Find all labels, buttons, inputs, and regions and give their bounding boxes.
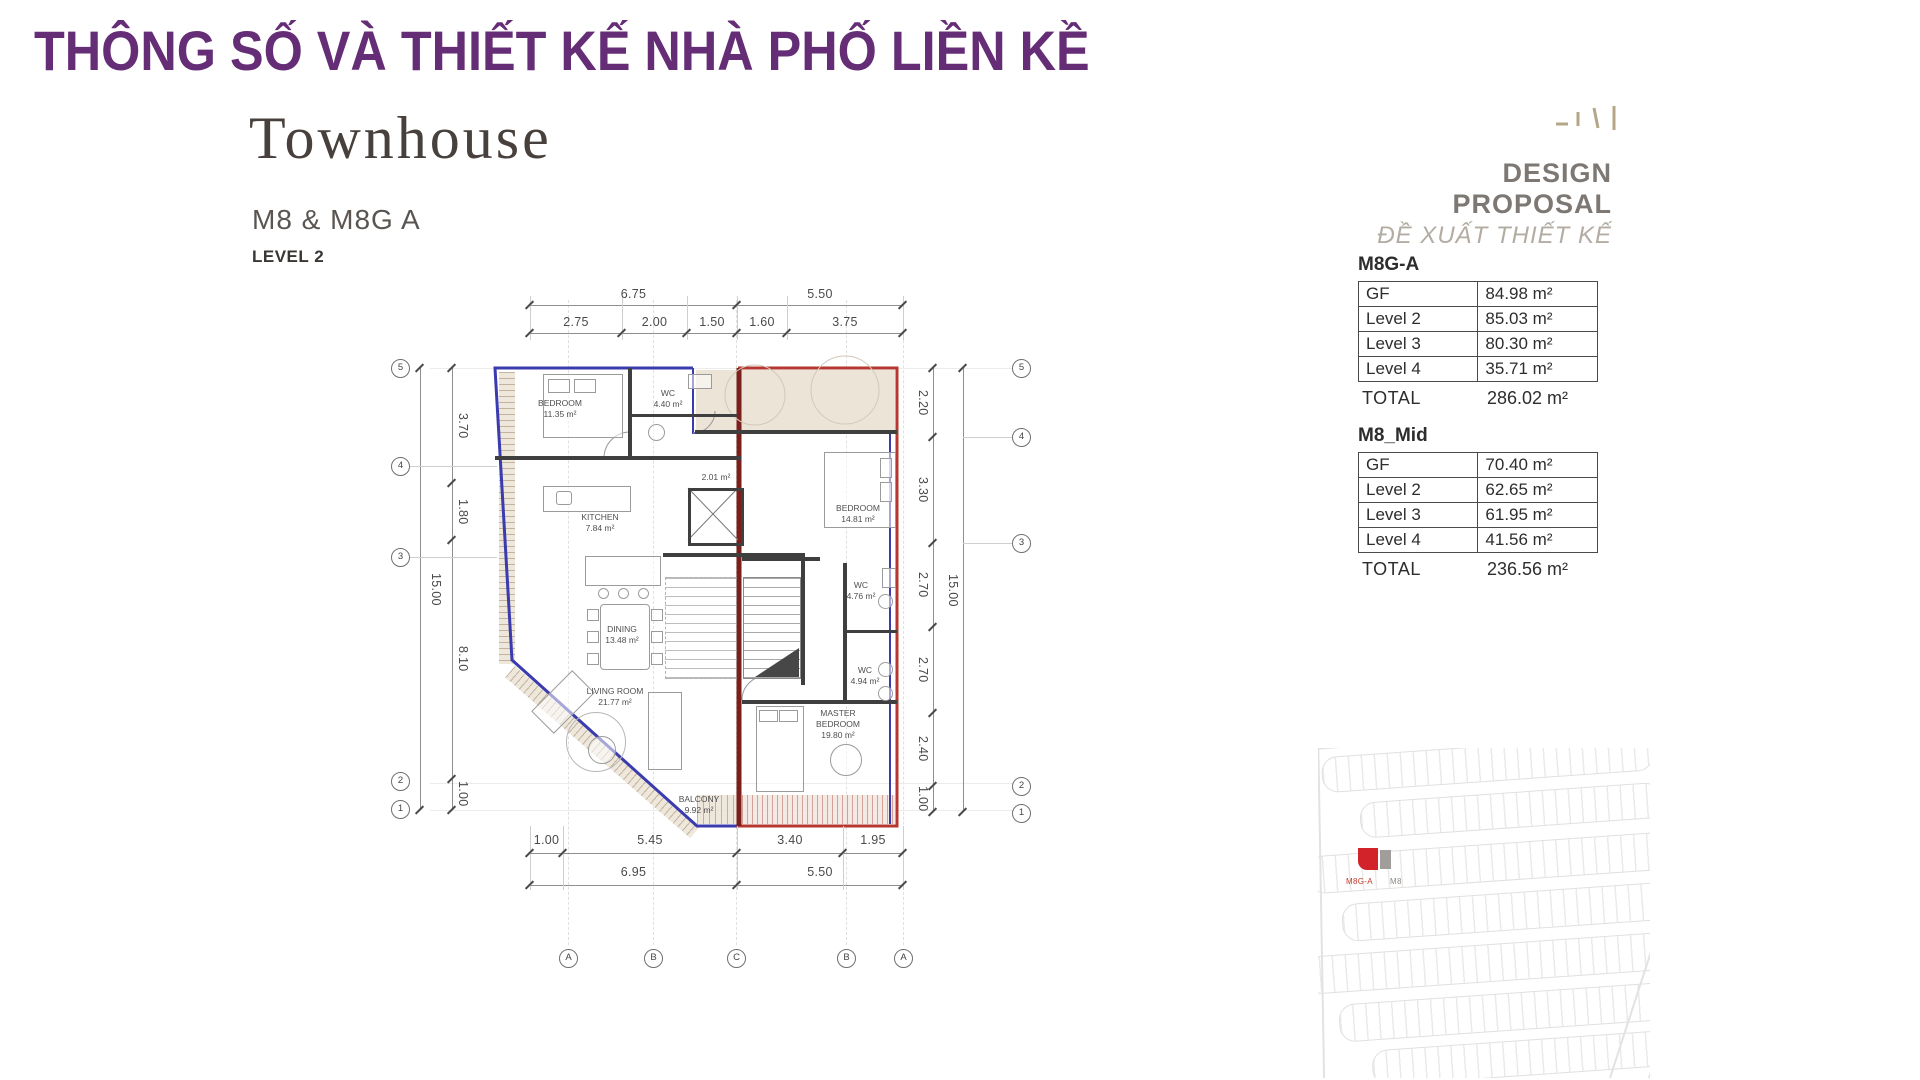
site-location-map [1318, 748, 1650, 1078]
site-map-highlight-m8ga [1358, 848, 1378, 870]
area-tables: M8G-A GF84.98 m² Level 285.03 m² Level 3… [1358, 254, 1598, 596]
row-label: Level 3 [1359, 503, 1478, 528]
grid-col-bubble: C [727, 949, 746, 968]
grid-col-bubble: A [894, 949, 913, 968]
row-value: 84.98 m² [1478, 282, 1598, 307]
design-proposal-subtitle: ĐỀ XUẤT THIẾT KẾ [1356, 222, 1612, 250]
grid-row-bubble: 3 [391, 548, 410, 567]
row-label: GF [1359, 282, 1478, 307]
room-wc-2: WC4.76 m² [830, 580, 892, 602]
table-title-m8mid: M8_Mid [1358, 425, 1598, 447]
table-total-m8ga: TOTAL 286.02 m² [1358, 388, 1598, 409]
grid-col-bubble: B [644, 949, 663, 968]
row-value: 35.71 m² [1478, 357, 1598, 382]
room-wc-3: WC4.94 m² [834, 665, 896, 687]
row-value: 41.56 m² [1478, 528, 1598, 553]
grid-row-bubble: 2 [1012, 777, 1031, 796]
row-value: 85.03 m² [1478, 307, 1598, 332]
row-value: 61.95 m² [1478, 503, 1598, 528]
room-wc-1: WC4.40 m² [640, 388, 696, 410]
grid-col-bubble: A [559, 949, 578, 968]
area-table-m8mid: GF70.40 m² Level 262.65 m² Level 361.95 … [1358, 452, 1598, 553]
row-label: Level 3 [1359, 332, 1478, 357]
grid-row-bubble: 5 [1012, 359, 1031, 378]
room-hall: 2.01 m² [690, 472, 742, 483]
grid-col-bubble: B [837, 949, 856, 968]
row-value: 62.65 m² [1478, 478, 1598, 503]
design-proposal-header: DESIGN PROPOSAL ĐỀ XUẤT THIẾT KẾ [1356, 158, 1612, 250]
row-label: Level 2 [1359, 307, 1478, 332]
grid-row-bubble: 5 [391, 359, 410, 378]
table-title-m8ga: M8G-A [1358, 254, 1598, 276]
room-bedroom-1: BEDROOM11.35 m² [519, 398, 601, 420]
row-value: 80.30 m² [1478, 332, 1598, 357]
design-proposal-title: DESIGN PROPOSAL [1356, 158, 1612, 220]
slide: THÔNG SỐ VÀ THIẾT KẾ NHÀ PHỐ LIỀN KỀ Tow… [0, 0, 1920, 1080]
row-value: 70.40 m² [1478, 453, 1598, 478]
row-label: Level 2 [1359, 478, 1478, 503]
grid-row-bubble: 4 [391, 457, 410, 476]
row-label: Level 4 [1359, 528, 1478, 553]
room-master-bedroom: MASTER BEDROOM19.80 m² [806, 708, 870, 741]
logo-fragment [1548, 100, 1628, 136]
room-balcony: BALCONY9.92 m² [663, 794, 735, 816]
row-label: Level 4 [1359, 357, 1478, 382]
site-map-label-m8: M8 [1390, 877, 1402, 886]
grid-row-bubble: 1 [1012, 804, 1031, 823]
room-dining: DINING13.48 m² [581, 624, 663, 646]
grid-row-bubble: 2 [391, 772, 410, 791]
table-total-m8mid: TOTAL 236.56 m² [1358, 559, 1598, 580]
site-map-label-m8ga: M8G-A [1346, 877, 1373, 886]
site-map-highlight-m8 [1380, 850, 1391, 869]
row-label: GF [1359, 453, 1478, 478]
room-bedroom-2: BEDROOM14.81 m² [818, 503, 898, 525]
room-kitchen: KITCHEN7.84 m² [560, 512, 640, 534]
grid-row-bubble: 4 [1012, 428, 1031, 447]
area-table-m8ga: GF84.98 m² Level 285.03 m² Level 380.30 … [1358, 281, 1598, 382]
room-living: LIVING ROOM21.77 m² [573, 686, 657, 708]
grid-row-bubble: 1 [391, 800, 410, 819]
grid-row-bubble: 3 [1012, 534, 1031, 553]
